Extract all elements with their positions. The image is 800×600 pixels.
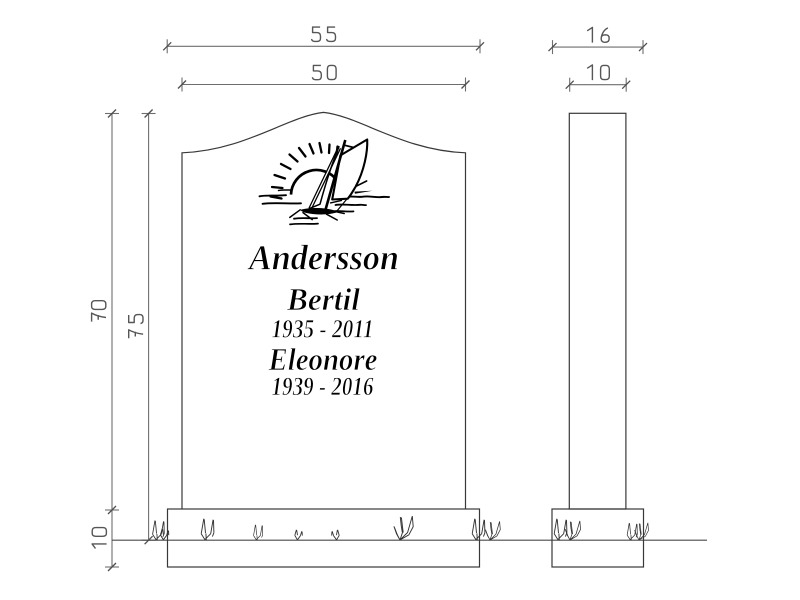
svg-text:1939 - 2016: 1939 - 2016 (272, 371, 375, 401)
svg-text:Andersson: Andersson (247, 237, 399, 277)
svg-text:1935 - 2011: 1935 - 2011 (272, 314, 374, 344)
svg-text:Bertil: Bertil (286, 282, 360, 317)
